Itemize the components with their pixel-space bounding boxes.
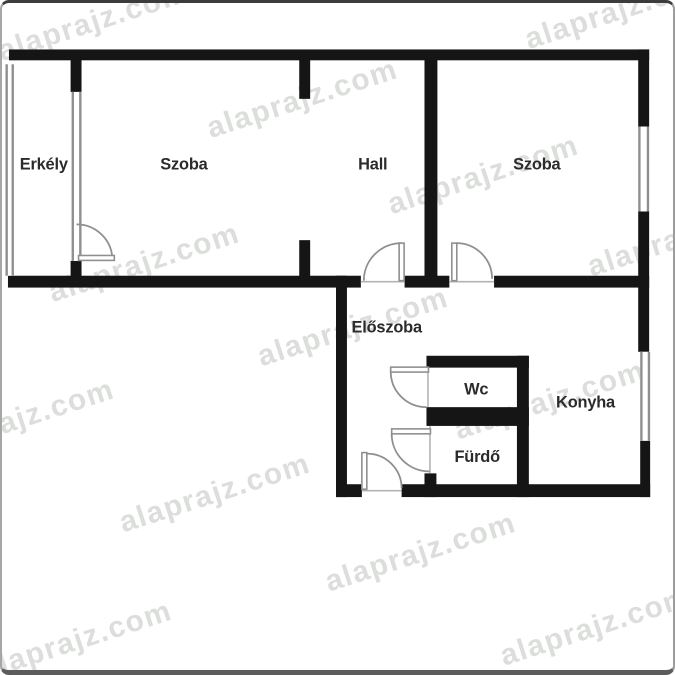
wall-hall-stub-bottom bbox=[299, 240, 310, 278]
door-wc-arc bbox=[391, 372, 427, 408]
door-entrance-arc bbox=[367, 454, 402, 489]
watermark-text: alaprajz.com bbox=[384, 129, 583, 221]
wall-mid-left bbox=[8, 276, 361, 288]
room-label-hall: Hall bbox=[358, 155, 387, 173]
door-szoba-leaf bbox=[452, 243, 457, 281]
watermark-text: alaprajz.com bbox=[2, 594, 176, 670]
door-szoba-arc bbox=[456, 243, 492, 279]
door-hall-leaf bbox=[399, 243, 404, 281]
floor-plan-canvas: alaprajz.comalaprajz.comalaprajz.comalap… bbox=[2, 3, 673, 670]
wall-exterior-right-1 bbox=[638, 49, 649, 126]
floor-plan-image: alaprajz.comalaprajz.comalaprajz.comalap… bbox=[0, 0, 675, 675]
watermark-text: alaprajz.com bbox=[115, 447, 314, 539]
door-furdo-arc bbox=[392, 434, 430, 472]
wall-hall-szoba-divider bbox=[424, 58, 437, 277]
door-erkely-leaf bbox=[79, 255, 115, 260]
room-label-szoba-right: Szoba bbox=[513, 155, 561, 173]
door-furdo-leaf bbox=[392, 429, 431, 434]
wall-eloszoba-left bbox=[336, 276, 347, 497]
room-label-wc: Wc bbox=[464, 381, 488, 399]
wall-erkely-partition bbox=[71, 58, 82, 92]
room-label-konyha: Konyha bbox=[556, 394, 616, 412]
room-label-furdo: Fürdő bbox=[454, 448, 500, 466]
room-label-eloszoba: Előszoba bbox=[352, 318, 423, 336]
watermark-text: alaprajz.com bbox=[450, 354, 649, 446]
wall-mid-right bbox=[494, 276, 649, 288]
door-erkely-arc bbox=[77, 224, 113, 260]
room-label-szoba-left: Szoba bbox=[160, 155, 208, 173]
wall-wc-furdo-divider bbox=[426, 407, 528, 426]
door-hall-arc bbox=[364, 243, 402, 281]
door-wc-leaf bbox=[391, 367, 429, 372]
door-entrance-leaf bbox=[362, 453, 367, 490]
watermark-text: alaprajz.com bbox=[496, 580, 673, 670]
wall-wc-top bbox=[426, 356, 528, 368]
wall-hall-stub-top bbox=[299, 58, 310, 99]
watermark-text: alaprajz.com bbox=[583, 191, 673, 283]
wall-mid-center bbox=[405, 276, 450, 288]
watermark-text: alaprajz.com bbox=[521, 3, 673, 56]
wall-furdo-stub bbox=[424, 473, 436, 497]
wall-exterior-top bbox=[9, 49, 649, 60]
watermark-text: alaprajz.com bbox=[2, 373, 118, 465]
wall-wc-furdo-right bbox=[517, 356, 529, 497]
wall-bottom-left bbox=[336, 484, 362, 497]
watermark-text: alaprajz.com bbox=[321, 506, 520, 598]
wall-erkely-stub bbox=[71, 261, 82, 278]
room-label-erkely: Erkély bbox=[20, 155, 68, 173]
